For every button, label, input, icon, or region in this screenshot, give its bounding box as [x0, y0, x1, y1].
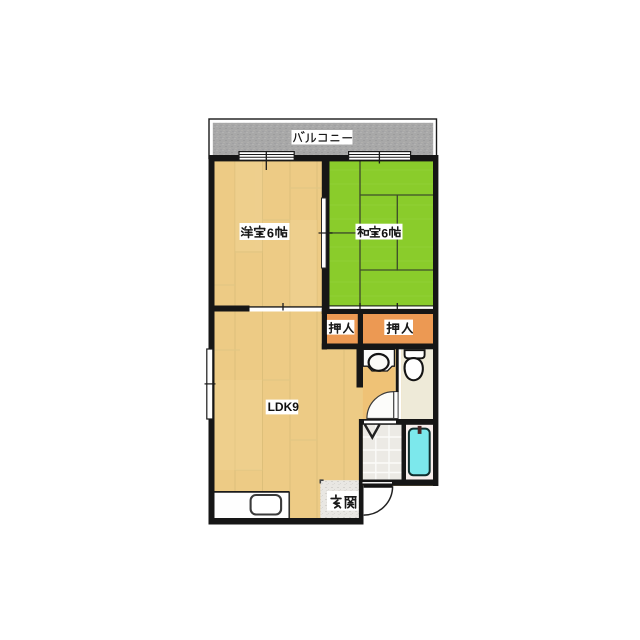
svg-text:6: 6	[381, 226, 388, 240]
svg-text:6: 6	[267, 226, 274, 241]
svg-text:LDK9: LDK9	[268, 400, 300, 414]
